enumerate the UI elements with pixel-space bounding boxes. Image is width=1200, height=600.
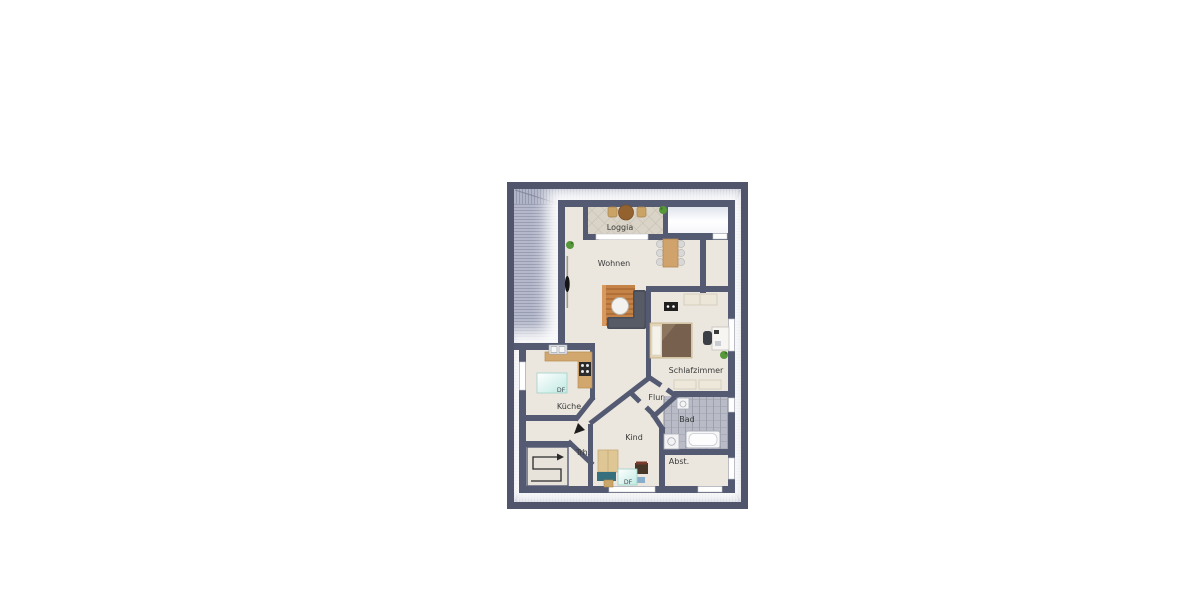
coffee-table-icon [612,298,629,315]
room-label-wohnen: Wohnen [598,259,630,268]
loggia-chair-icon [608,207,617,217]
loggia-table-icon [619,205,634,220]
office-chair-icon [703,331,712,345]
stove-icon [579,362,591,376]
room-label-kind: Kind [625,433,643,442]
room-label-flur: Flur [648,393,664,402]
page: Loggia Wohnen Schlafzimmer Küche Flur Ba… [0,0,1200,600]
toilet-icon [677,398,689,409]
bed-icon [650,323,692,358]
skylight-label-kind: DF [624,479,633,486]
dining-set-icon [656,239,684,267]
dresser-icon [699,380,721,389]
dresser-icon [674,380,696,389]
loggia-chair-icon [637,207,646,217]
room-label-loggia: Loggia [607,223,634,232]
kid-chair-icon [604,480,613,487]
room-label-bad: Bad [679,415,694,424]
sink-icon [549,345,567,354]
room-label-schlafzimmer: Schlafzimmer [669,366,724,375]
bathtub-icon [686,431,720,448]
plant-icon [659,206,667,214]
room-label-abst: Abst. [669,457,689,466]
washbasin-icon [664,434,679,449]
floor-plan-svg: Loggia Wohnen Schlafzimmer Küche Flur Ba… [0,0,1200,600]
room-label-trh: Trh. [575,448,590,457]
wardrobe-icon [684,294,717,305]
skylight-label-kueche: DF [557,387,566,394]
staircase-icon [527,447,568,486]
stereo-icon [664,302,678,311]
roof-recess [667,206,729,234]
kid-desk-icon [597,472,616,481]
room-label-kueche: Küche [557,402,581,411]
